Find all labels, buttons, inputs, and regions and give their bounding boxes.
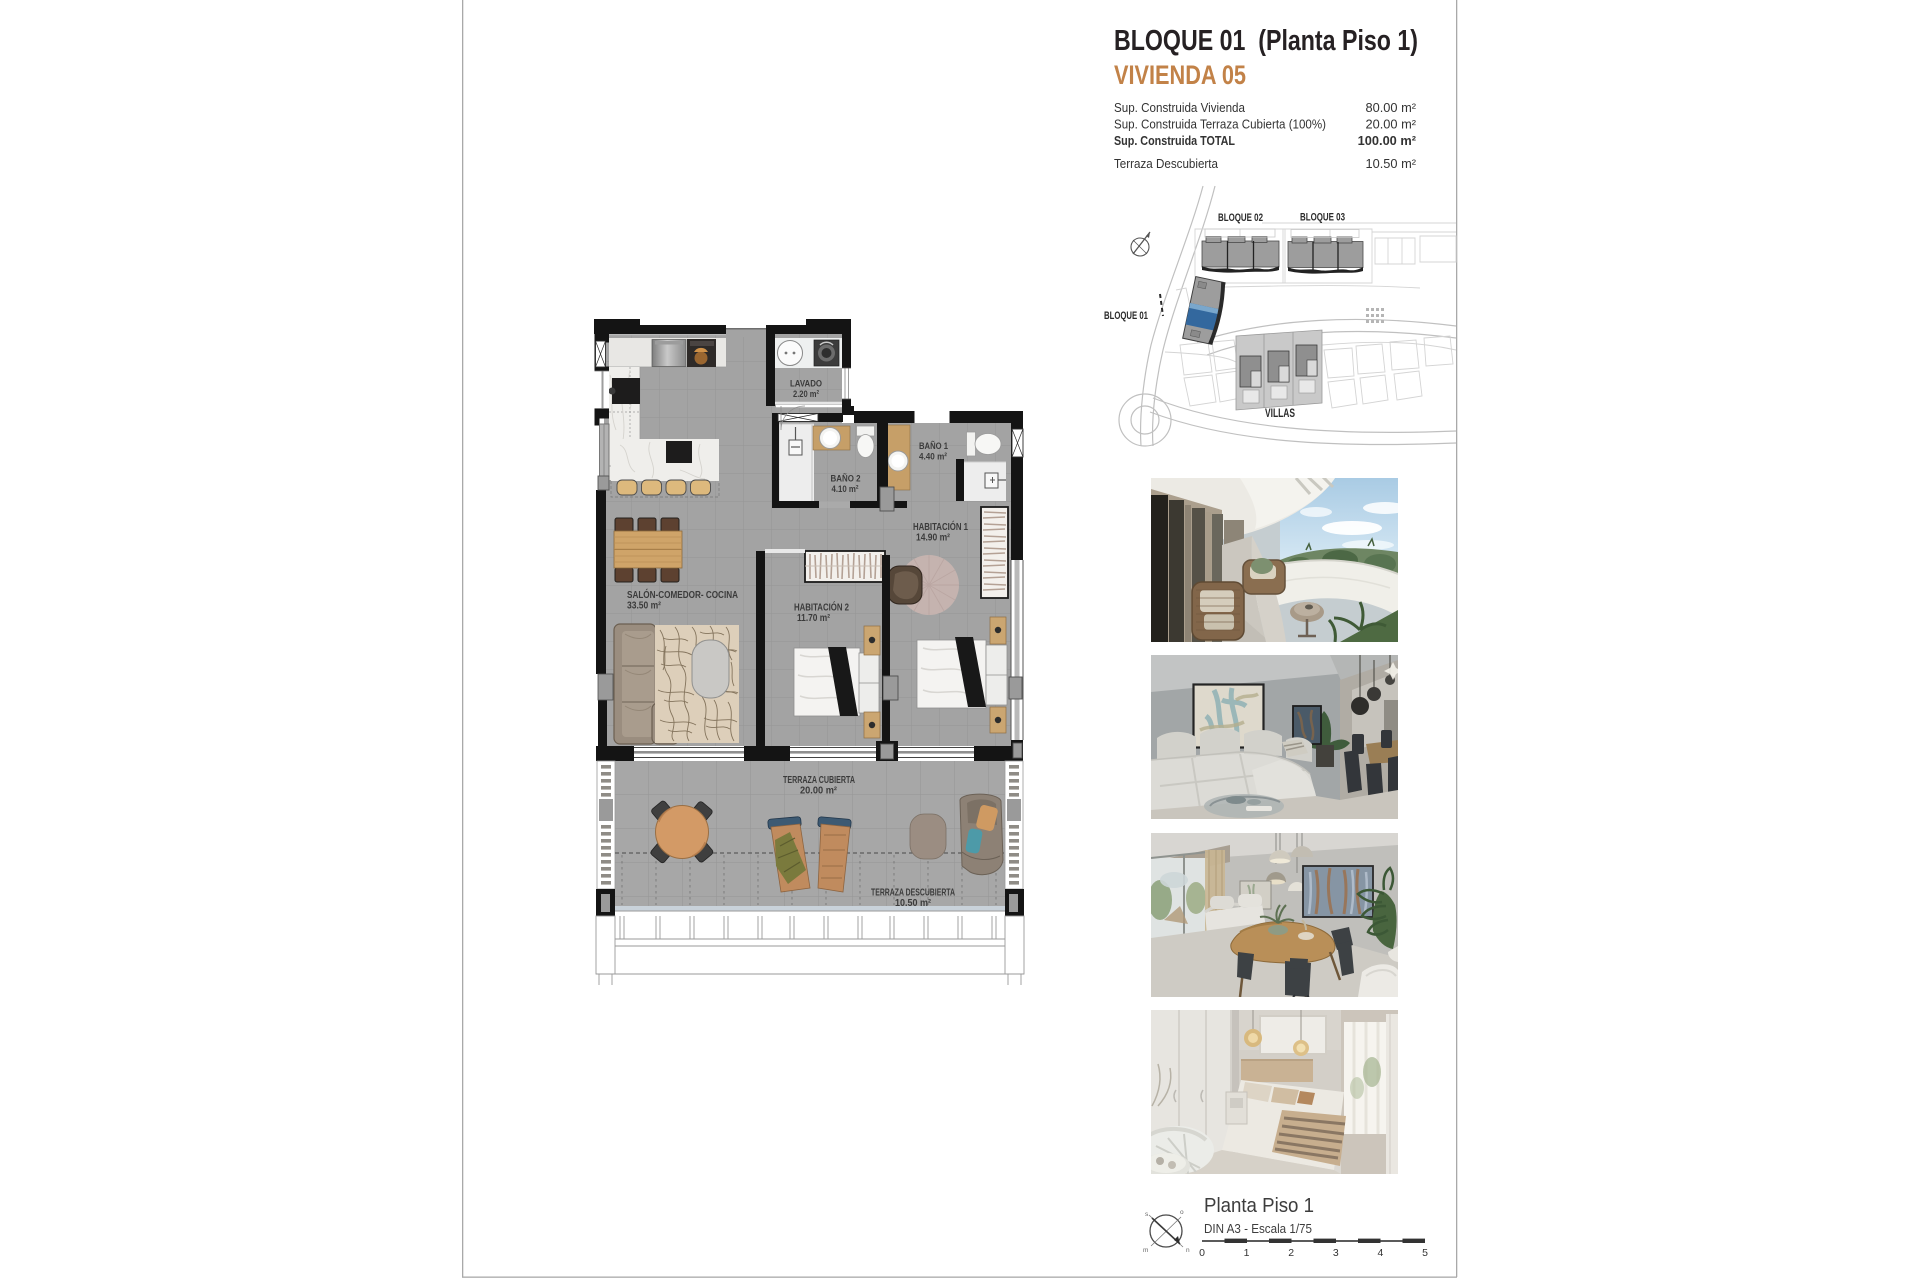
svg-text:TERRAZA DESCUBIERTA: TERRAZA DESCUBIERTA	[871, 888, 955, 899]
svg-text:DIN A3 - Escala 1/75: DIN A3 - Escala 1/75	[1204, 1221, 1312, 1236]
svg-text:Sup. Construida Terraza Cubier: Sup. Construida Terraza Cubierta (100%)	[1114, 117, 1326, 132]
svg-text:4: 4	[1377, 1247, 1383, 1259]
svg-text:1: 1	[1244, 1247, 1250, 1259]
svg-text:HABITACIÓN 1: HABITACIÓN 1	[913, 520, 968, 533]
svg-text:2: 2	[1288, 1247, 1294, 1259]
svg-text:LAVADO: LAVADO	[790, 379, 822, 390]
svg-text:4.10 m²: 4.10 m²	[832, 484, 859, 495]
svg-text:4.40 m²: 4.40 m²	[919, 452, 947, 463]
svg-text:BLOQUE 01: BLOQUE 01	[1104, 310, 1148, 322]
svg-text:HABITACIÓN 2: HABITACIÓN 2	[794, 601, 849, 614]
svg-text:0: 0	[1199, 1247, 1205, 1259]
svg-text:BLOQUE 02: BLOQUE 02	[1218, 212, 1263, 224]
svg-text:10.50 m²: 10.50 m²	[895, 898, 932, 909]
svg-text:3: 3	[1333, 1247, 1339, 1259]
svg-text:5: 5	[1422, 1247, 1428, 1259]
svg-text:80.00 m²: 80.00 m²	[1365, 100, 1416, 115]
svg-text:BAÑO 2: BAÑO 2	[831, 474, 861, 485]
svg-text:BLOQUE 03: BLOQUE 03	[1300, 212, 1345, 224]
svg-text:14.90 m²: 14.90 m²	[916, 533, 951, 544]
svg-text:BLOQUE 01 (Planta Piso 1): BLOQUE 01 (Planta Piso 1)	[1114, 25, 1418, 57]
svg-text:VIVIENDA 05: VIVIENDA 05	[1114, 60, 1246, 90]
svg-text:Sup. Construida Vivienda: Sup. Construida Vivienda	[1114, 100, 1246, 115]
svg-text:Planta Piso 1: Planta Piso 1	[1204, 1195, 1314, 1217]
svg-text:o: o	[1180, 1209, 1184, 1216]
svg-text:BAÑO 1: BAÑO 1	[919, 441, 949, 452]
svg-text:20.00 m²: 20.00 m²	[800, 786, 838, 797]
svg-text:10.50 m²: 10.50 m²	[1365, 156, 1416, 171]
svg-text:VILLAS: VILLAS	[1265, 406, 1295, 420]
svg-text:Terraza Descubierta: Terraza Descubierta	[1114, 156, 1219, 171]
svg-text:2.20 m²: 2.20 m²	[793, 389, 819, 400]
svg-text:100.00 m²: 100.00 m²	[1358, 133, 1416, 148]
svg-text:11.70 m²: 11.70 m²	[797, 613, 831, 624]
svg-text:TERRAZA CUBIERTA: TERRAZA CUBIERTA	[783, 775, 855, 786]
svg-text:Sup. Construida TOTAL: Sup. Construida TOTAL	[1114, 133, 1235, 148]
svg-text:m: m	[1143, 1247, 1148, 1254]
svg-text:20.00 m²: 20.00 m²	[1365, 117, 1416, 132]
svg-text:n: n	[1186, 1247, 1190, 1254]
svg-text:33.50 m²: 33.50 m²	[627, 600, 661, 612]
